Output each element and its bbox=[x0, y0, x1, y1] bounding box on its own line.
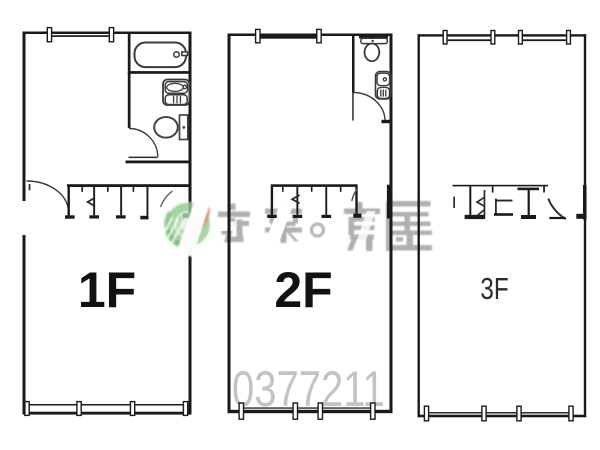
svg-text:3F: 3F bbox=[480, 271, 508, 306]
svg-text:1F: 1F bbox=[78, 262, 136, 318]
svg-text:2F: 2F bbox=[274, 262, 332, 318]
